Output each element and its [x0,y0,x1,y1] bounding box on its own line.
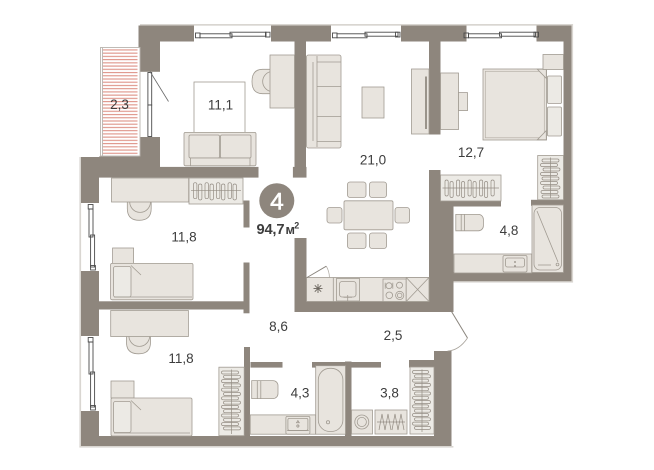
svg-text:11,8: 11,8 [171,230,196,245]
svg-text:21,0: 21,0 [360,153,386,168]
svg-text:11,8: 11,8 [168,351,193,366]
svg-text:11,1: 11,1 [208,98,233,113]
svg-text:4,8: 4,8 [500,223,519,238]
svg-text:3,8: 3,8 [380,386,399,401]
svg-text:4,3: 4,3 [291,386,310,401]
svg-text:12,7: 12,7 [458,145,484,160]
svg-text:2,5: 2,5 [384,328,403,343]
svg-text:94,7: 94,7 [257,222,285,238]
svg-text:2,3: 2,3 [110,97,129,112]
svg-text:2: 2 [294,220,299,230]
svg-text:4: 4 [270,189,284,216]
svg-text:8,6: 8,6 [269,319,288,334]
